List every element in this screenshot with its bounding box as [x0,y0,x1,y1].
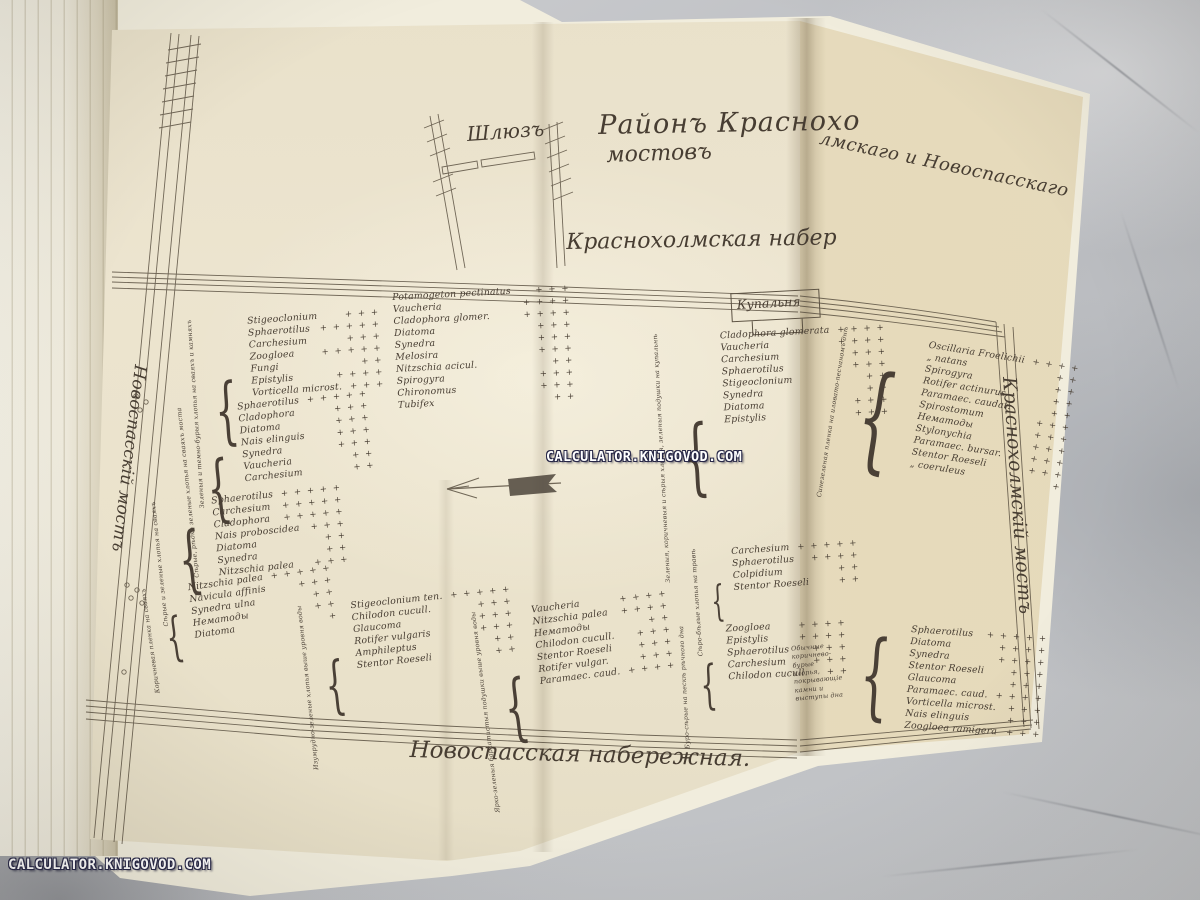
species-rows: Oscillaria Froelichii+ + + +„ natans+ +S… [903,340,1081,535]
brace-glyph: { [323,657,349,712]
abundance-marks: + + [345,461,376,475]
species-name: Fungi [250,362,279,375]
species-group: Ярко-зеленыя бархатистыя подушки выше ур… [470,591,665,813]
species-name: Melosira [395,350,438,363]
species-group: Обычные коричнево-бурые хлопья, покрываю… [789,616,1028,740]
habitat-label: Обычные коричнево-бурые хлопья, покрываю… [791,640,845,702]
brace-glyph: { [851,368,903,471]
brace-glyph: { [501,676,532,741]
species-rows: Vaucheria+ + + +Nitzschia palea+ + + +Не… [530,588,690,806]
map-title-line2: мостовъ [606,139,712,168]
watermark-bottom-left: CALCULATOR.KNIGOVOD.COM [8,857,211,873]
bathhouse-label: Купальня [731,290,819,313]
species-name: Tubifex [398,398,435,411]
species-rows: Potamogeton pectinatus+ + +Vaucheria+ + … [392,283,576,412]
species-name: Diatoma [723,400,765,413]
species-name: Synedra [395,338,436,351]
embankment-top-label: Краснохолмская набер [566,225,837,255]
species-group: Изумрудно-зеленые хлопья выше уровня вод… [296,587,492,770]
species-rows: Sphaerotilus+ + + + +Diatoma+ + + +Syned… [904,624,1048,741]
abundance-marks: + + [546,392,576,405]
abundance-marks: + [1044,481,1062,494]
bathhouse-box: Купальня [730,289,820,323]
species-group: Potamogeton pectinatus+ + +Vaucheria+ + … [392,283,576,412]
brace-glyph: { [700,663,719,708]
abundance-marks: + + [831,574,861,587]
photo-of-book-map-plate: Районъ Краснохо лмскаго и Новоспасскаго … [0,0,1200,900]
species-name: Epistylis [724,412,767,425]
species-name: Diatoma [394,326,436,339]
brace-glyph: { [164,614,187,661]
species-name: Epistylis [726,633,769,646]
species-name: Synedra [723,388,764,401]
brace-glyph: { [857,634,893,716]
watermark-center: CALCULATOR.KNIGOVOD.COM [546,449,742,465]
brace-glyph: { [710,583,726,620]
species-group: Синезеленая пленка на иловато-песчаномъ … [816,326,1019,525]
